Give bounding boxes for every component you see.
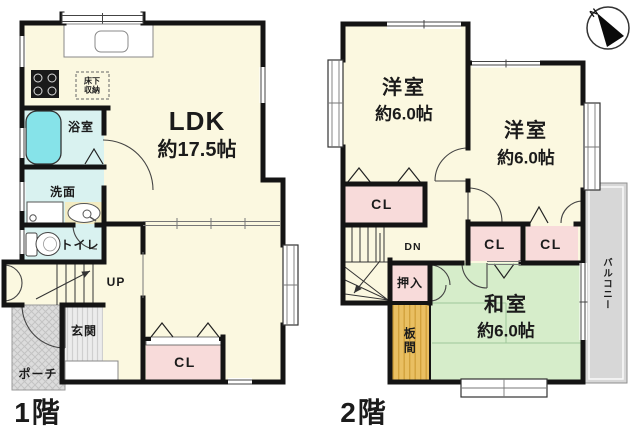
floorplan-page: N LDK 約17.5帖 浴室 洗面 トイレ UP 玄関 ポーチ CL 床下 収…: [0, 0, 640, 435]
underfloor-storage-label-1: 床下: [84, 76, 100, 85]
room-label-bath: 浴室: [68, 121, 94, 133]
floor1-title: 1階: [14, 399, 62, 427]
floor1-plan: [4, 13, 298, 391]
room-label-washroom: 洗面: [50, 186, 76, 198]
bathtub: [26, 111, 61, 164]
stove: [31, 70, 59, 98]
room-label-entrance: 玄関: [71, 325, 97, 337]
stairs-up-label: UP: [107, 276, 126, 288]
room-label-japanese: 和室: [484, 295, 528, 315]
room-size-japanese: 約6.0帖: [477, 323, 535, 340]
room-label-western2: 洋室: [504, 121, 548, 141]
kitchen-sink: [95, 31, 128, 52]
room-label-ldk: LDK: [169, 108, 225, 134]
closet-label-2f-b: CL: [484, 237, 506, 251]
entrance-step: [65, 361, 118, 381]
balcony-label: バルコニー: [601, 258, 611, 311]
room-size-ldk: 約17.5帖: [158, 140, 237, 160]
underfloor-storage-label-2: 収納: [84, 85, 100, 94]
room-label-porch: ポーチ: [18, 368, 57, 380]
room-label-western1: 洋室: [382, 78, 426, 98]
oshiire-label: 押入: [397, 277, 423, 289]
closet-label-2f-a: CL: [371, 197, 393, 211]
room-label-toilet: トイレ: [60, 239, 99, 251]
room-size-western2: 約6.0帖: [497, 150, 555, 167]
toilet-fixture: [26, 233, 60, 257]
closet-label-2f-c: CL: [540, 237, 562, 251]
closet-label-1f: CL: [174, 355, 196, 369]
stairs-dn-label: DN: [404, 242, 421, 253]
itanoma-label: 板間: [403, 327, 416, 355]
floorplan-graphics: N: [0, 0, 640, 435]
compass: N: [587, 7, 629, 49]
floor2-title: 2階: [340, 399, 388, 427]
room-size-western1: 約6.0帖: [375, 106, 433, 123]
